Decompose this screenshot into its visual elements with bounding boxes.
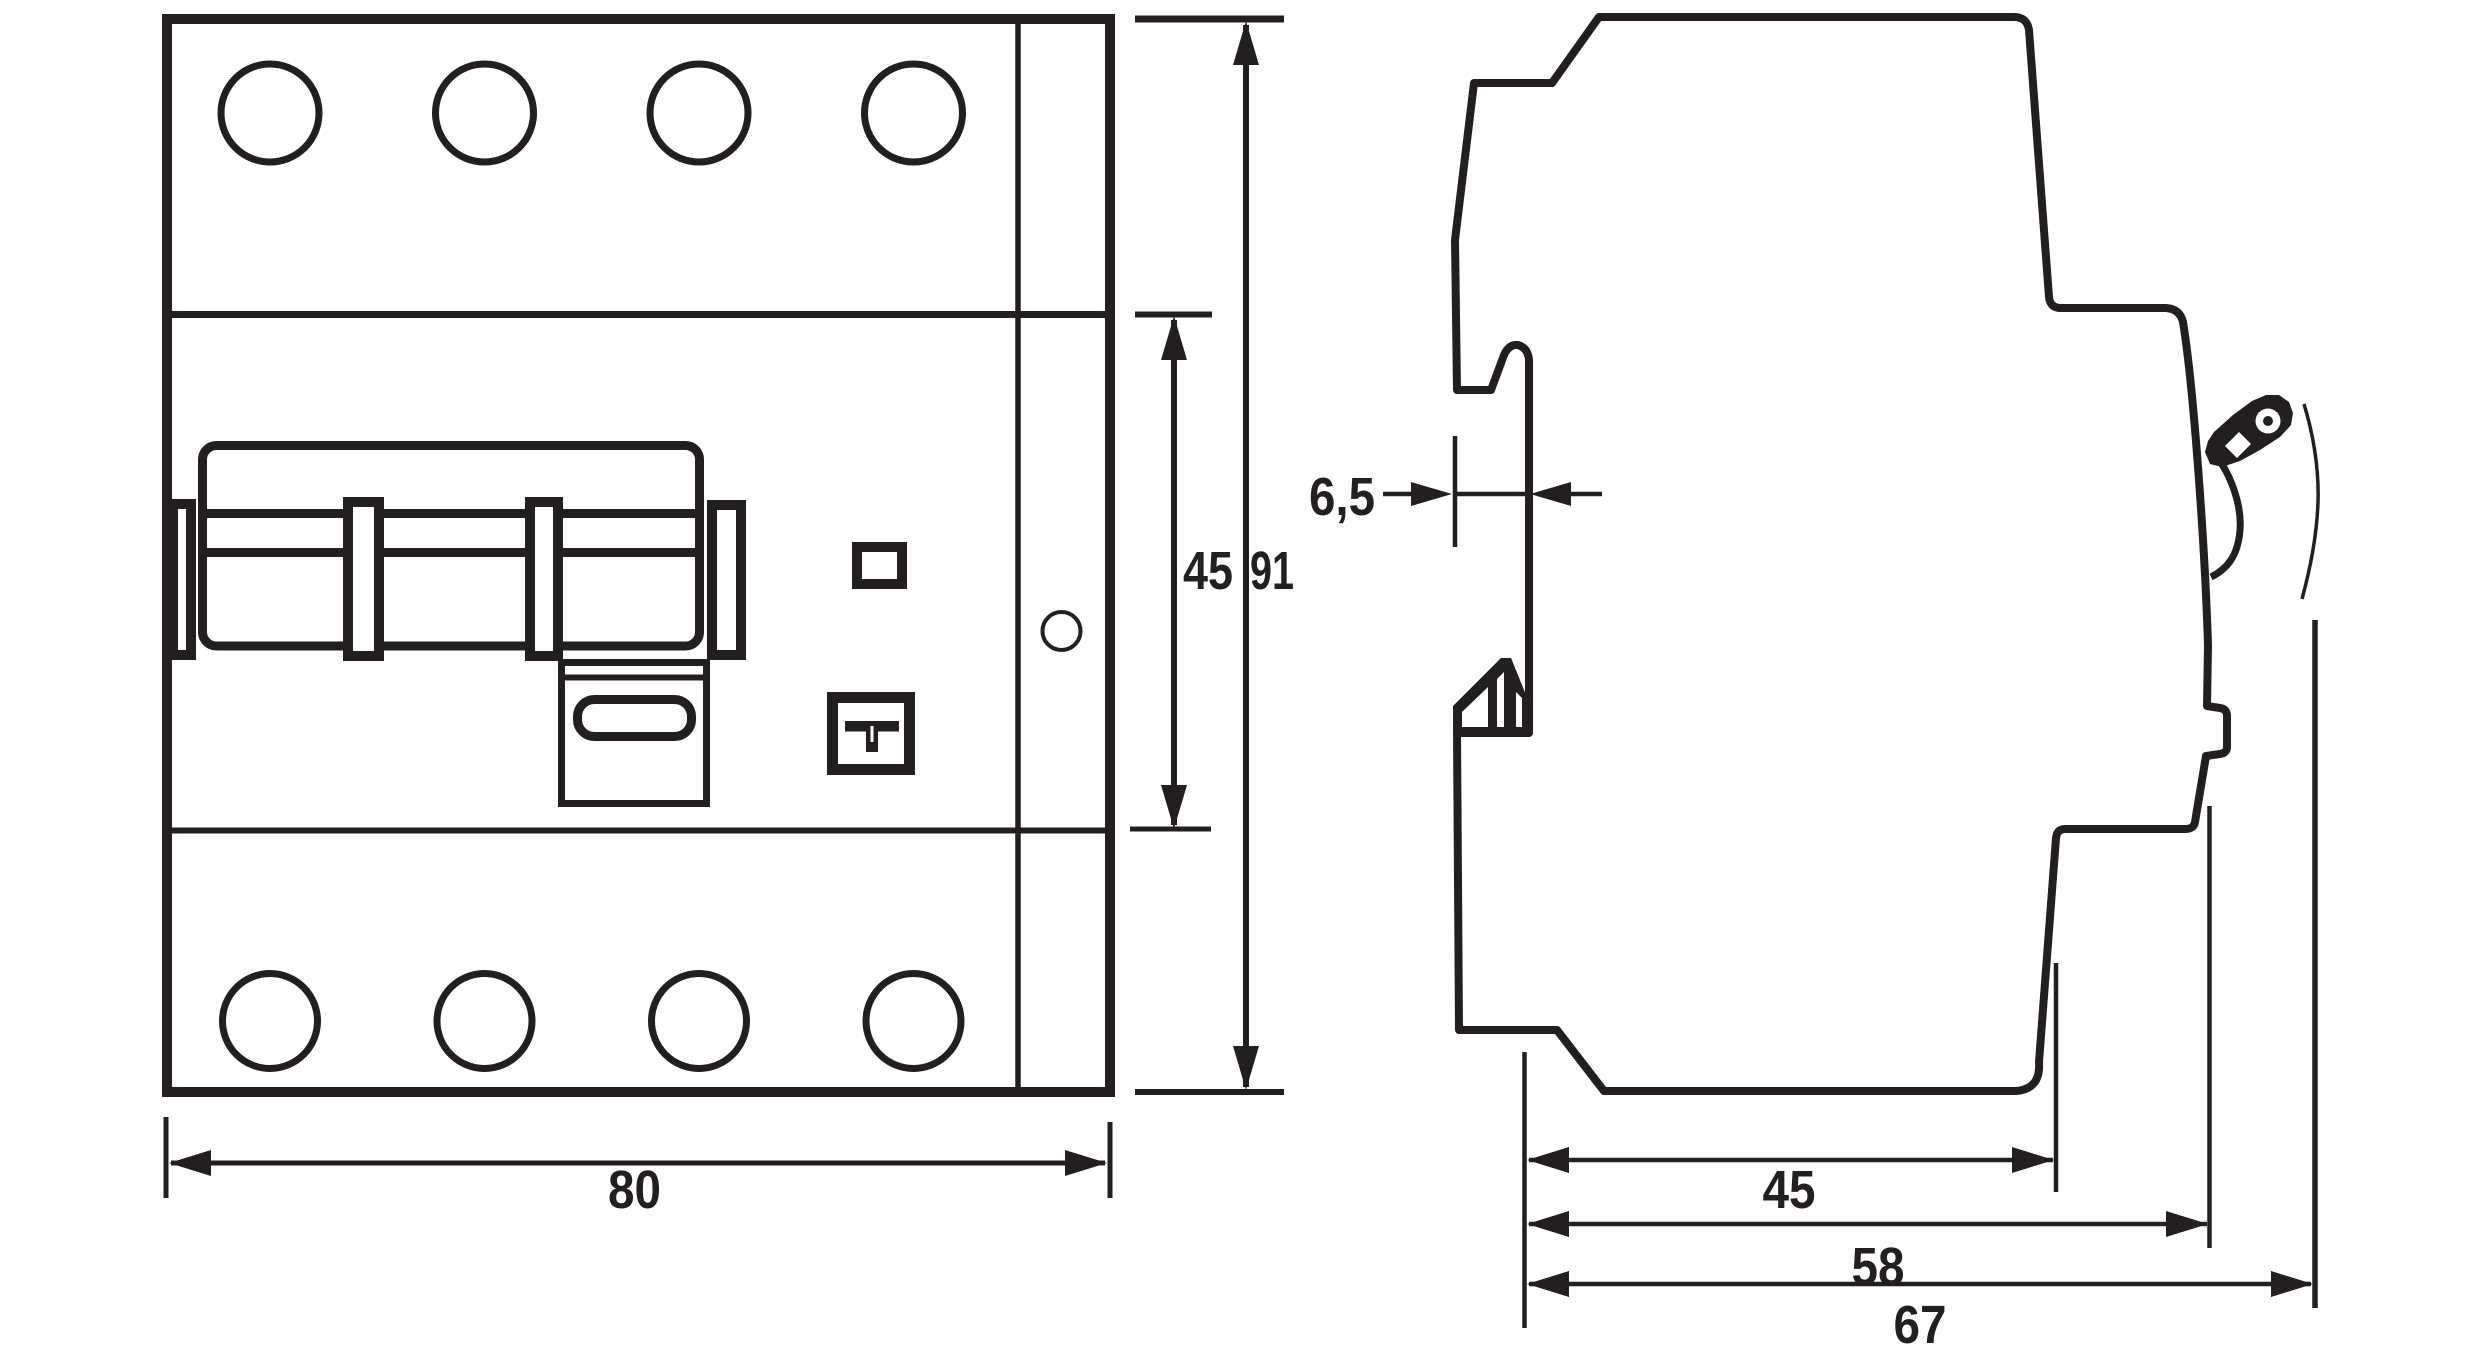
svg-text:45: 45 xyxy=(1183,542,1233,601)
svg-text:80: 80 xyxy=(608,1161,661,1220)
svg-text:45: 45 xyxy=(1763,1161,1816,1220)
svg-text:58: 58 xyxy=(1852,1238,1905,1297)
svg-text:6,5: 6,5 xyxy=(1309,468,1375,527)
svg-text:91: 91 xyxy=(1250,542,1294,601)
svg-text:67: 67 xyxy=(1894,1296,1947,1355)
